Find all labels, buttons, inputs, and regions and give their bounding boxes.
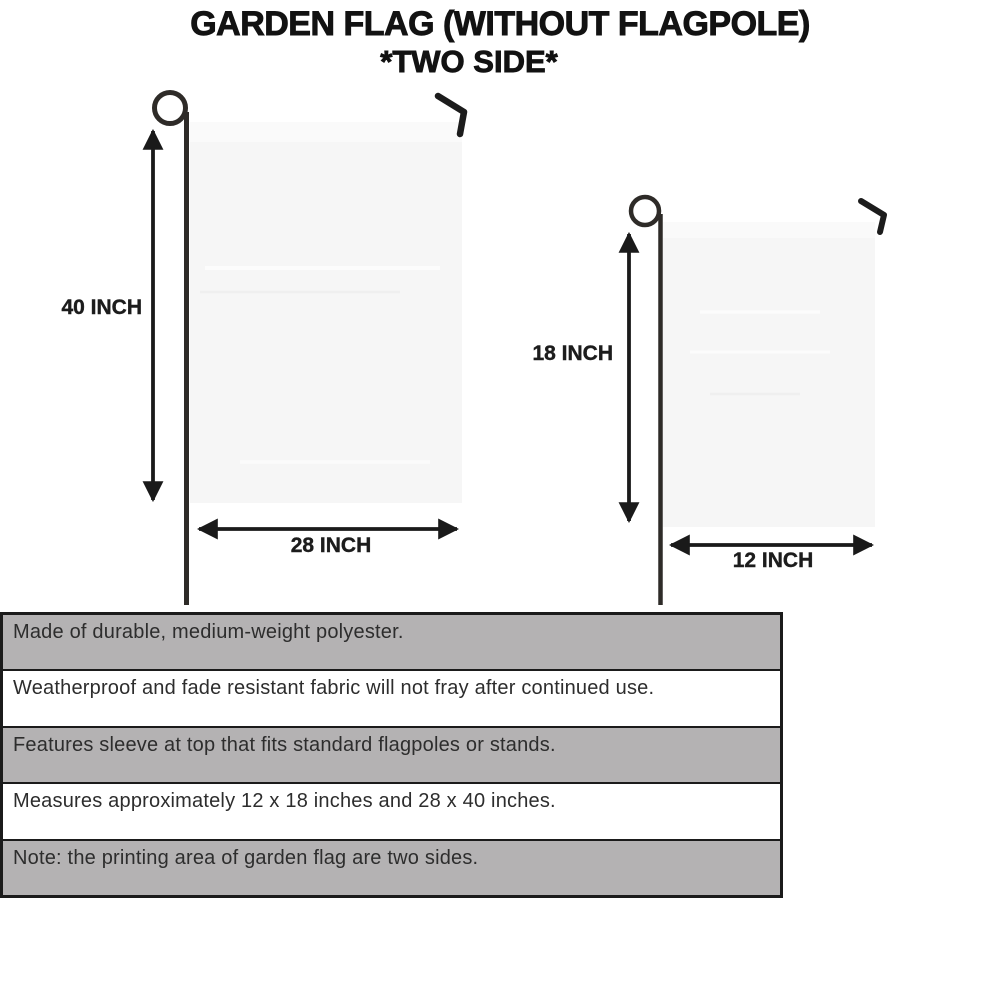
large-flagpole-loop-icon xyxy=(155,93,186,124)
large-flag-panel xyxy=(190,122,462,503)
feature-row-measures: Measures approximately 12 x 18 inches an… xyxy=(3,784,780,840)
small-flag-sleeve xyxy=(663,222,875,238)
features-table: Made of durable, medium-weight polyester… xyxy=(0,612,783,898)
small-flag-panel xyxy=(663,222,875,527)
large-height-label: 40 INCH xyxy=(30,295,142,321)
small-width-label: 12 INCH xyxy=(700,548,846,574)
garden-flag-infographic: GARDEN FLAG (WITHOUT FLAGPOLE) *TWO SIDE… xyxy=(0,0,1000,1000)
large-flag-group xyxy=(153,93,464,606)
large-flag-sleeve xyxy=(190,122,462,142)
large-width-label: 28 INCH xyxy=(258,533,404,559)
feature-row-material: Made of durable, medium-weight polyester… xyxy=(3,615,780,671)
small-flagpole-loop-icon xyxy=(631,197,659,225)
feature-row-sleeve: Features sleeve at top that fits standar… xyxy=(3,728,780,784)
small-flag-group xyxy=(629,197,884,605)
feature-row-weatherproof: Weatherproof and fade resistant fabric w… xyxy=(3,671,780,727)
feature-row-note: Note: the printing area of garden flag a… xyxy=(3,841,780,895)
small-height-label: 18 INCH xyxy=(505,341,613,367)
flag-size-diagram xyxy=(0,0,1000,620)
